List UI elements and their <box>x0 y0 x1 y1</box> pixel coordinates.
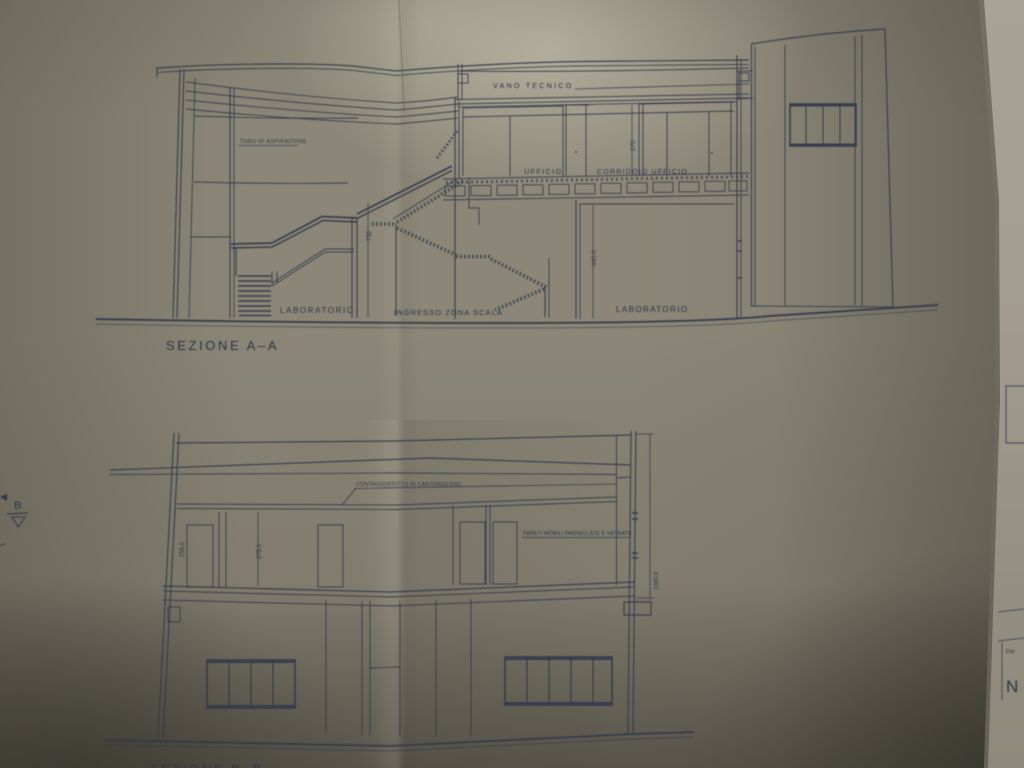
svg-text:B: B <box>14 500 21 512</box>
svg-text:VANO TECNICO: VANO TECNICO <box>493 81 573 90</box>
svg-text:1040.0: 1040.0 <box>654 571 660 590</box>
svg-text:PARETI MOBILI PANNELLATE E VET: PARETI MOBILI PANNELLATE E VETRATE <box>523 531 632 537</box>
svg-text:440.0: 440.0 <box>591 250 598 266</box>
svg-text:255.0: 255.0 <box>180 541 186 557</box>
svg-text:INGRESSO ZONA SCALA: INGRESSO ZONA SCALA <box>394 308 503 317</box>
svg-text:TUBO DI ASPIRAZIONE: TUBO DI ASPIRAZIONE <box>240 139 307 145</box>
svg-text:UFFICIO: UFFICIO <box>524 167 563 176</box>
svg-text:N: N <box>1006 677 1018 696</box>
svg-text:LABORATORIO: LABORATORIO <box>280 306 355 315</box>
svg-text:SEZIONE B–B: SEZIONE B–B <box>150 762 264 768</box>
svg-text:275.0: 275.0 <box>257 543 263 559</box>
svg-text:270: 270 <box>630 140 637 151</box>
svg-text:SEZIONE A–A: SEZIONE A–A <box>166 338 279 353</box>
svg-text:732: 732 <box>367 230 373 241</box>
svg-text:LABORATORIO: LABORATORIO <box>616 305 688 314</box>
svg-text:Dat: Dat <box>1006 649 1015 655</box>
